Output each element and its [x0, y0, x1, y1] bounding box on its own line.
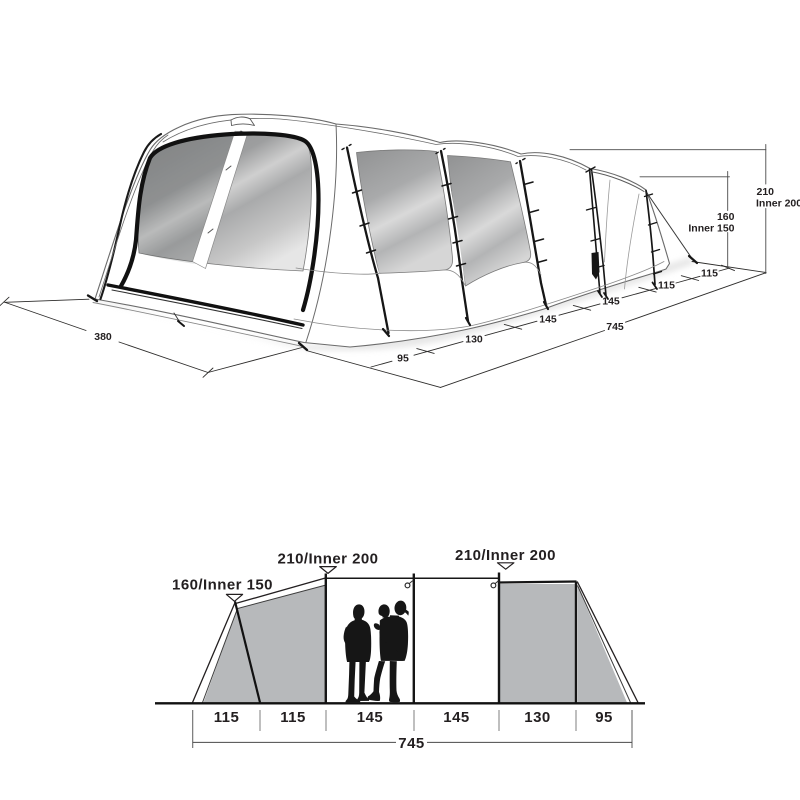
svg-text:145: 145	[443, 709, 469, 726]
svg-text:115: 115	[701, 268, 718, 280]
svg-text:130: 130	[524, 709, 550, 726]
svg-text:380: 380	[94, 331, 112, 343]
svg-text:160/Inner 150: 160/Inner 150	[172, 577, 273, 594]
svg-text:210/Inner 200: 210/Inner 200	[278, 551, 379, 568]
svg-text:210/Inner 200: 210/Inner 200	[455, 547, 556, 564]
svg-text:745: 745	[606, 321, 624, 333]
svg-text:210: 210	[757, 186, 775, 198]
svg-text:95: 95	[397, 353, 409, 365]
svg-text:115: 115	[214, 709, 240, 726]
svg-text:130: 130	[465, 334, 483, 346]
svg-text:115: 115	[658, 279, 675, 291]
svg-text:115: 115	[280, 709, 306, 726]
svg-text:745: 745	[398, 735, 424, 752]
svg-text:145: 145	[602, 296, 620, 308]
svg-text:Inner 200: Inner 200	[756, 198, 800, 210]
svg-text:145: 145	[357, 709, 383, 726]
svg-text:Inner 150: Inner 150	[688, 222, 734, 234]
svg-text:95: 95	[595, 709, 613, 726]
svg-text:160: 160	[717, 211, 735, 223]
svg-text:145: 145	[539, 313, 557, 325]
